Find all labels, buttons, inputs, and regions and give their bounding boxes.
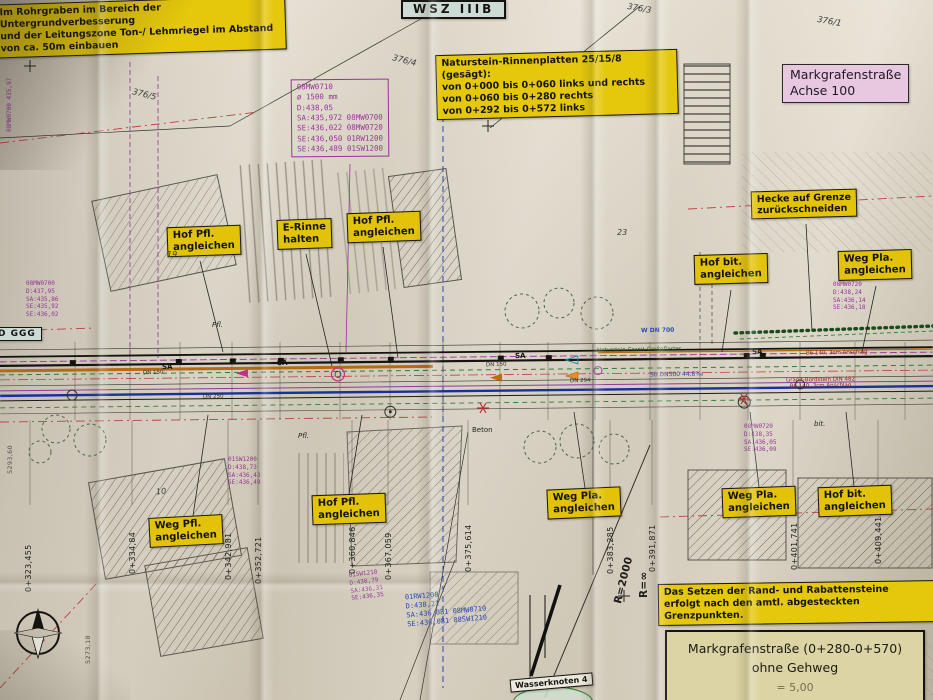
title-block-line1: Markgrafenstraße (0+280-0+570) <box>667 641 923 656</box>
manhole-table-right: 08MW0720 D:438,24 SA:436,14 SE:436,18 <box>833 281 866 312</box>
road-text-bordstein-short: B6 140, 3cm Anschlag <box>806 349 868 356</box>
road-text-bit: bit. <box>814 420 825 428</box>
road-text-sa: SA <box>277 359 288 367</box>
station-label: 0+409,441 <box>874 516 883 564</box>
road-text-dn294: DN 294 <box>570 378 591 385</box>
road-text-beton: Beton <box>472 426 493 434</box>
station-label: 0+401,741 <box>790 522 799 570</box>
road-text-sa: SA <box>752 348 763 356</box>
road-text-w-dn700: W DN 700 <box>641 327 674 335</box>
station-label: 0+367,059 <box>384 532 393 580</box>
title-block: Markgrafenstraße (0+280-0+570) ohne Gehw… <box>665 630 925 700</box>
label-weg-pla-3: Weg Pla. angleichen <box>722 486 797 518</box>
parcel-number: 19 <box>167 250 177 259</box>
survey-marks <box>477 394 750 413</box>
note-pipe-trench: Im Rohrgraben im Bereich der Untergrundv… <box>0 0 287 58</box>
station-label: 0+383,285 <box>606 526 615 574</box>
label-hof-bit-2: Hof bit. angleichen <box>818 485 893 517</box>
label-hecke: Hecke auf Grenze zurückschneiden <box>751 189 858 220</box>
manhole-text-far-left: 08MW0700 435,97 <box>6 78 14 132</box>
road-text-pfl: Pfl. <box>298 432 309 440</box>
label-weg-pfl: Weg Pfl. angleichen <box>148 514 223 547</box>
title-block-line3: = 5,00 <box>667 681 923 694</box>
label-hof-pfl-2: Hof Pfl. angleichen <box>347 211 422 243</box>
grid-coordinate: 5293,60 <box>6 445 14 474</box>
label-hof-bit-1: Hof bit. angleichen <box>694 253 768 285</box>
curve-label-infinity: R=∞ <box>638 571 650 598</box>
label-e-rinne: E-Rinne halten <box>277 218 333 250</box>
station-label: 0+375,614 <box>464 524 473 572</box>
station-label: 0+334,84 <box>128 532 137 574</box>
manhole-table-center-left: 01SW1200 D:438,73 SA:436,43 SE:436,49 <box>228 456 261 487</box>
station-label: 0+323,455 <box>24 544 33 592</box>
road-text-bordstein-long: Granit-Bordstein DIN 482 B6 140, 3cm Ans… <box>786 376 855 389</box>
station-label: 0+352,721 <box>254 536 263 584</box>
note-gutter-slabs: Naturstein-Rinnenplatten 25/15/8 (gesägt… <box>435 49 679 121</box>
road-text-sb-dn500: Sb DN500 44,8‰ <box>650 371 704 379</box>
road-text-dn150: DN 150 <box>486 362 507 369</box>
road-text-sa: SA <box>515 352 526 360</box>
manhole-table-left: 08MW0700 D:437,95 SA:435,86 SE:435,92 SE… <box>26 280 59 319</box>
label-weg-pla-2: Weg Pla. angleichen <box>546 486 621 519</box>
tree-symbols <box>29 288 629 464</box>
note-kerb-setting: Das Setzen der Rand- und Rabattensteine … <box>658 580 933 626</box>
label-weg-pla-1: Weg Pla. angleichen <box>838 249 912 281</box>
green-dashed-line <box>740 331 933 339</box>
grid-coordinate: 5273,18 <box>84 635 92 664</box>
manhole-table-main: 08MW0710 ø 1500 mm D:438,05 SA:435,972 0… <box>291 79 389 158</box>
manhole-table-blue: 01RW1200 D:438,21 SA:436,081 08MW0710 SE… <box>405 587 488 630</box>
north-arrow <box>14 608 62 658</box>
title-block-line2: ohne Gehweg <box>667 660 923 675</box>
left-edge-tag: D GGG <box>0 327 42 341</box>
axis-title-box: Markgrafenstraße Achse 100 <box>782 64 909 103</box>
station-label: 0+342,981 <box>224 532 233 580</box>
road-text-dn150: DN 150 <box>143 370 164 377</box>
station-label: 0+391,871 <box>648 524 657 572</box>
manhole-table-right-low: 08MW0720 D:438,35 SA:436,05 SE:436,09 <box>744 423 777 454</box>
label-hof-pfl-1: Hof Pfl. angleichen <box>167 225 242 257</box>
label-hof-pfl-3: Hof Pfl. angleichen <box>312 493 387 525</box>
road-text-dn250: DN 250 <box>203 394 224 401</box>
water-protection-zone-box: WSZ IIIB <box>401 0 506 19</box>
plan-photo: Im Rohrgraben im Bereich der Untergrundv… <box>0 0 933 700</box>
parcel-number: 23 <box>617 228 627 237</box>
parcel-number: 10 <box>156 486 167 496</box>
road-text-pfl: Pfl. <box>212 321 223 329</box>
station-label: 0+360,846 <box>348 526 357 574</box>
